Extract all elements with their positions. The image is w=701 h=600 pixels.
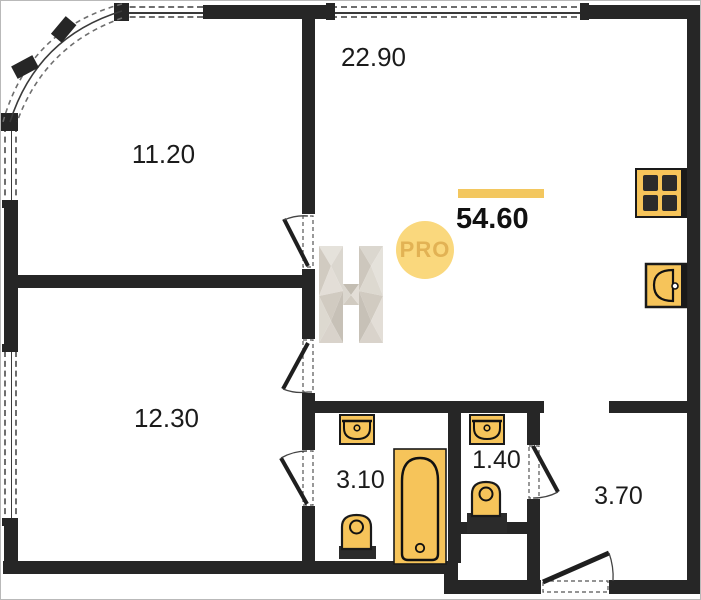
- wc-sink-icon: [470, 415, 504, 444]
- bay-window: [3, 4, 122, 122]
- entrance-threshold: [543, 581, 608, 592]
- room-area-bedroom-top: 11.20: [116, 140, 211, 169]
- stove-icon: [636, 169, 686, 217]
- floor-plan: 22.90 11.20 12.30 3.10 1.40 3.70 54.60 P…: [0, 0, 701, 600]
- room-area-living: 22.90: [326, 43, 421, 72]
- window-mullion-cap: [11, 55, 39, 79]
- pro-badge-label: PRO: [400, 237, 451, 263]
- door-wc: [533, 446, 558, 498]
- kitchen-sink-icon: [646, 264, 686, 307]
- room-area-wc: 1.40: [464, 447, 529, 475]
- door-bedroom-bottom: [283, 343, 308, 392]
- total-area-accent-bar: [458, 189, 544, 198]
- room-area-hallway: 3.70: [586, 483, 651, 511]
- total-area-value: 54.60: [456, 203, 561, 236]
- toilet-icon: [339, 515, 376, 559]
- watermark-h-logo-icon: [319, 246, 383, 343]
- bathtub-icon: [394, 449, 446, 564]
- bathroom-sink-icon: [340, 415, 374, 444]
- entrance-door: [543, 553, 613, 582]
- wc-toilet-icon: [467, 482, 507, 533]
- room-area-bathroom: 3.10: [328, 467, 393, 495]
- pro-badge: PRO: [396, 221, 454, 279]
- door-bedroom-top: [284, 216, 308, 266]
- room-area-bedroom-bottom: 12.30: [119, 404, 214, 433]
